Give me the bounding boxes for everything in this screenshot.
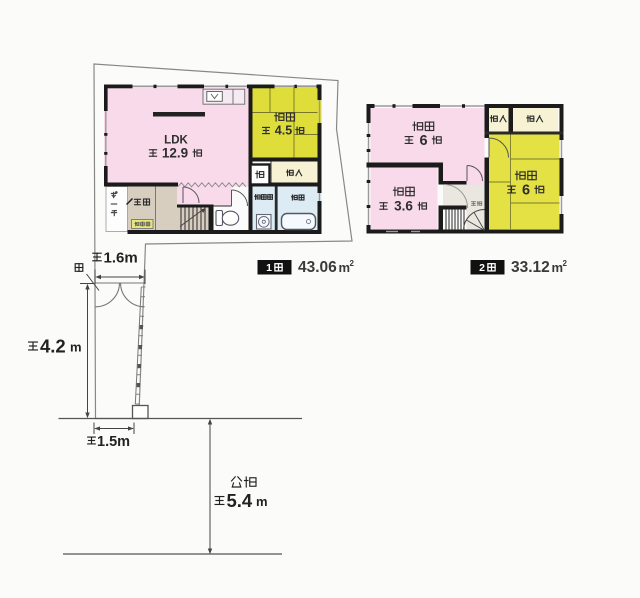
svg-text:m: m (339, 260, 351, 275)
svg-text:1.5m: 1.5m (97, 434, 130, 450)
svg-text:2: 2 (563, 259, 568, 268)
svg-text:6: 6 (522, 183, 530, 199)
svg-text:1: 1 (266, 262, 272, 274)
svg-text:12.9: 12.9 (162, 146, 188, 161)
svg-text:5.4: 5.4 (227, 490, 253, 511)
svg-text:2: 2 (479, 262, 485, 274)
svg-text:4.2: 4.2 (40, 336, 66, 357)
svg-text:2: 2 (350, 259, 355, 268)
svg-text:1.6m: 1.6m (104, 250, 138, 267)
svg-text:m: m (256, 494, 268, 509)
svg-text:3.6: 3.6 (394, 199, 413, 214)
svg-text:4.5: 4.5 (275, 124, 292, 138)
svg-text:6: 6 (419, 133, 427, 149)
svg-text:33.12: 33.12 (511, 259, 550, 276)
svg-text:43.06: 43.06 (298, 259, 337, 276)
svg-text:m: m (70, 340, 82, 355)
svg-text:m: m (552, 260, 564, 275)
